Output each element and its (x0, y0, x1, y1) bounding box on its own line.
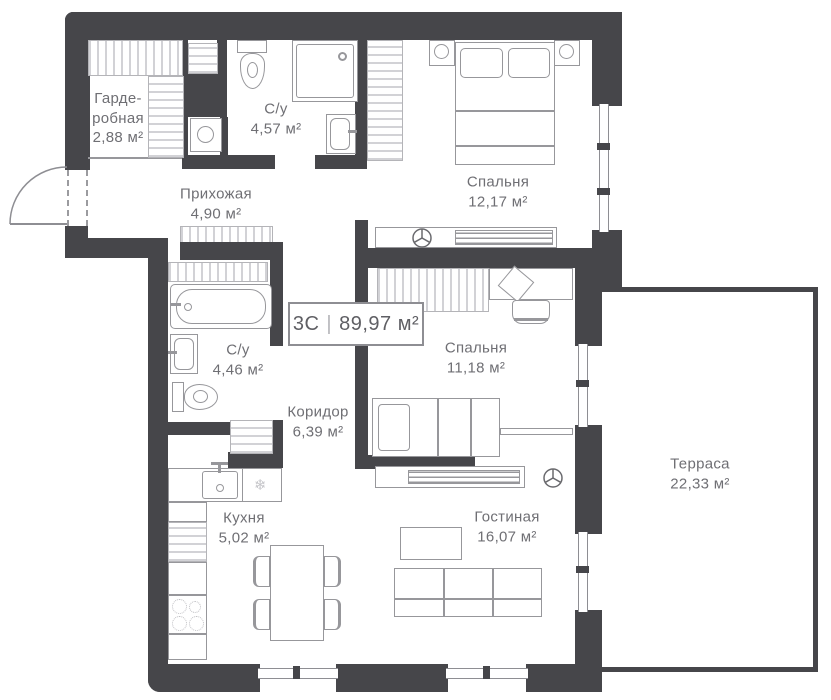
wall-top (65, 12, 622, 40)
room-area: 4,90 м² (180, 204, 252, 224)
wall-bathroom1-bottom-left (182, 155, 275, 169)
daybed-mattress (378, 404, 410, 451)
room-name: Коридор (287, 403, 348, 423)
wall-bedroom1-bottom (355, 248, 602, 268)
daybed-divider (470, 399, 472, 456)
room-label-corridor: Коридор 6,39 м² (287, 403, 348, 442)
wall-bottom-b (336, 664, 448, 692)
room-label-bathroom-1: С/у 4,57 м² (251, 100, 302, 139)
kitchen-faucet (211, 462, 228, 465)
window-bedroom1 (599, 104, 609, 232)
blanket-line (456, 110, 554, 112)
kitchen-sink-drain (216, 484, 224, 492)
room-name: Прихожая (180, 185, 252, 205)
sofa-backline (395, 598, 541, 600)
room-label-bathroom-2: С/у 4,46 м² (213, 341, 264, 380)
vent-fan-icon (411, 227, 433, 249)
room-area: 4,46 м² (213, 360, 264, 380)
bathroom2-shelf (168, 262, 268, 282)
window-mullion (483, 666, 490, 679)
stove-burner (172, 599, 187, 614)
room-label-living: Гостиная 16,07 м² (474, 508, 539, 547)
apartment-total-area: 89,97 м² (339, 313, 419, 336)
room-label-bedroom-1: Спальня 12,17 м² (467, 173, 529, 212)
bathroom1-closet (188, 43, 218, 74)
toilet-bowl-inner (193, 390, 208, 403)
vent-shaft (230, 420, 273, 454)
sink-faucet (348, 130, 357, 133)
stove-burner (189, 601, 201, 613)
wall-washer-block (188, 73, 227, 117)
snowflake-icon: ❄ (254, 476, 267, 494)
wardrobe-closet-right (148, 76, 184, 158)
wall-bathroom2-bottom (168, 422, 233, 435)
coffee-table (400, 527, 462, 560)
bathtub-faucet (171, 303, 181, 306)
window-mullion (576, 380, 589, 387)
bedroom1-closet (367, 40, 403, 161)
room-label-hallway: Прихожая 4,90 м² (180, 185, 252, 224)
room-label-kitchen: Кухня 5,02 м² (219, 509, 270, 548)
room-area: 22,33 м² (670, 474, 730, 494)
kitchen-cabinet (168, 562, 207, 595)
room-name: Кухня (219, 509, 270, 529)
dining-chair (324, 556, 341, 587)
kitchen-appliance (168, 522, 207, 562)
room-name: робная (92, 108, 144, 128)
wall-hallway-bottom (180, 242, 283, 260)
blanket-line (456, 145, 554, 147)
window-mullion (597, 188, 610, 195)
vent-fan-icon (542, 467, 564, 489)
room-area: 2,88 м² (92, 128, 144, 148)
wall-bottom-a (148, 664, 260, 692)
dresser-slats (455, 230, 553, 245)
wall-left-lower (148, 238, 168, 692)
wall-right-living-up (575, 425, 602, 534)
hallway-closet (180, 226, 273, 243)
chair-back (514, 318, 548, 321)
bathtub-drain (184, 303, 192, 311)
daybed-divider (437, 399, 439, 456)
room-name: Гарде- (92, 89, 144, 109)
room-area: 5,02 м² (219, 528, 270, 548)
window-mullion (597, 143, 610, 150)
floor-plan: ❄ Гарде- робная 2,88 м² С/у 4,57 м² Прих… (0, 0, 831, 700)
sofa (394, 568, 542, 617)
sink-faucet (168, 351, 177, 354)
bedroom2-sliding-door (500, 428, 573, 435)
dining-table (270, 545, 324, 641)
wardrobe-closet-top (88, 40, 183, 76)
room-name: С/у (213, 341, 264, 361)
terrace-wall-right (813, 287, 818, 672)
dining-chair (324, 599, 341, 630)
room-name: Терраса (670, 455, 730, 475)
sink-bathroom1-basin (330, 118, 350, 150)
lamp (559, 44, 574, 59)
room-label-bedroom-2: Спальня 11,18 м² (445, 339, 507, 378)
room-area: 11,18 м² (445, 358, 507, 378)
room-label-terrace: Терраса 22,33 м² (670, 455, 730, 494)
room-area: 6,39 м² (287, 422, 348, 442)
room-name: С/у (251, 100, 302, 120)
wall-right-living-low (575, 610, 602, 692)
terrace-wall-bottom (600, 667, 818, 672)
apartment-type: 3С (293, 313, 320, 336)
stove-burner (189, 616, 204, 631)
room-area: 12,17 м² (467, 192, 529, 212)
radiator-slats (408, 470, 520, 484)
washing-machine-door (197, 126, 214, 143)
dining-chair (253, 599, 270, 630)
kitchen-cabinet (168, 634, 207, 660)
sofa-divider (443, 569, 445, 616)
pillow (460, 48, 503, 78)
shower-head (338, 52, 347, 61)
room-name: Гостиная (474, 508, 539, 528)
room-area: 16,07 м² (474, 527, 539, 547)
lamp (434, 44, 449, 59)
pillow (508, 48, 550, 78)
room-area: 4,57 м² (251, 119, 302, 139)
title-separator: | (326, 313, 332, 336)
wall-right-bedroom1-up (592, 12, 622, 106)
room-label-wardrobe: Гарде- робная 2,88 м² (92, 89, 144, 148)
toilet-tank (237, 40, 267, 53)
window-mullion (293, 666, 300, 679)
room-name: Спальня (467, 173, 529, 193)
toilet-bowl-inner (247, 62, 258, 78)
terrace-wall-top (600, 287, 818, 292)
room-name: Спальня (445, 339, 507, 359)
stove-burner (172, 616, 187, 631)
sink-bathroom2-basin (174, 338, 194, 370)
kitchen-cabinet (168, 502, 207, 522)
apartment-title-plate: 3С | 89,97 м² (288, 302, 424, 346)
window-mullion (576, 566, 589, 573)
dining-chair (253, 556, 270, 587)
toilet-tank-b2 (172, 382, 184, 412)
wall-shaft-bottom (228, 452, 283, 468)
sofa-divider (492, 569, 494, 616)
